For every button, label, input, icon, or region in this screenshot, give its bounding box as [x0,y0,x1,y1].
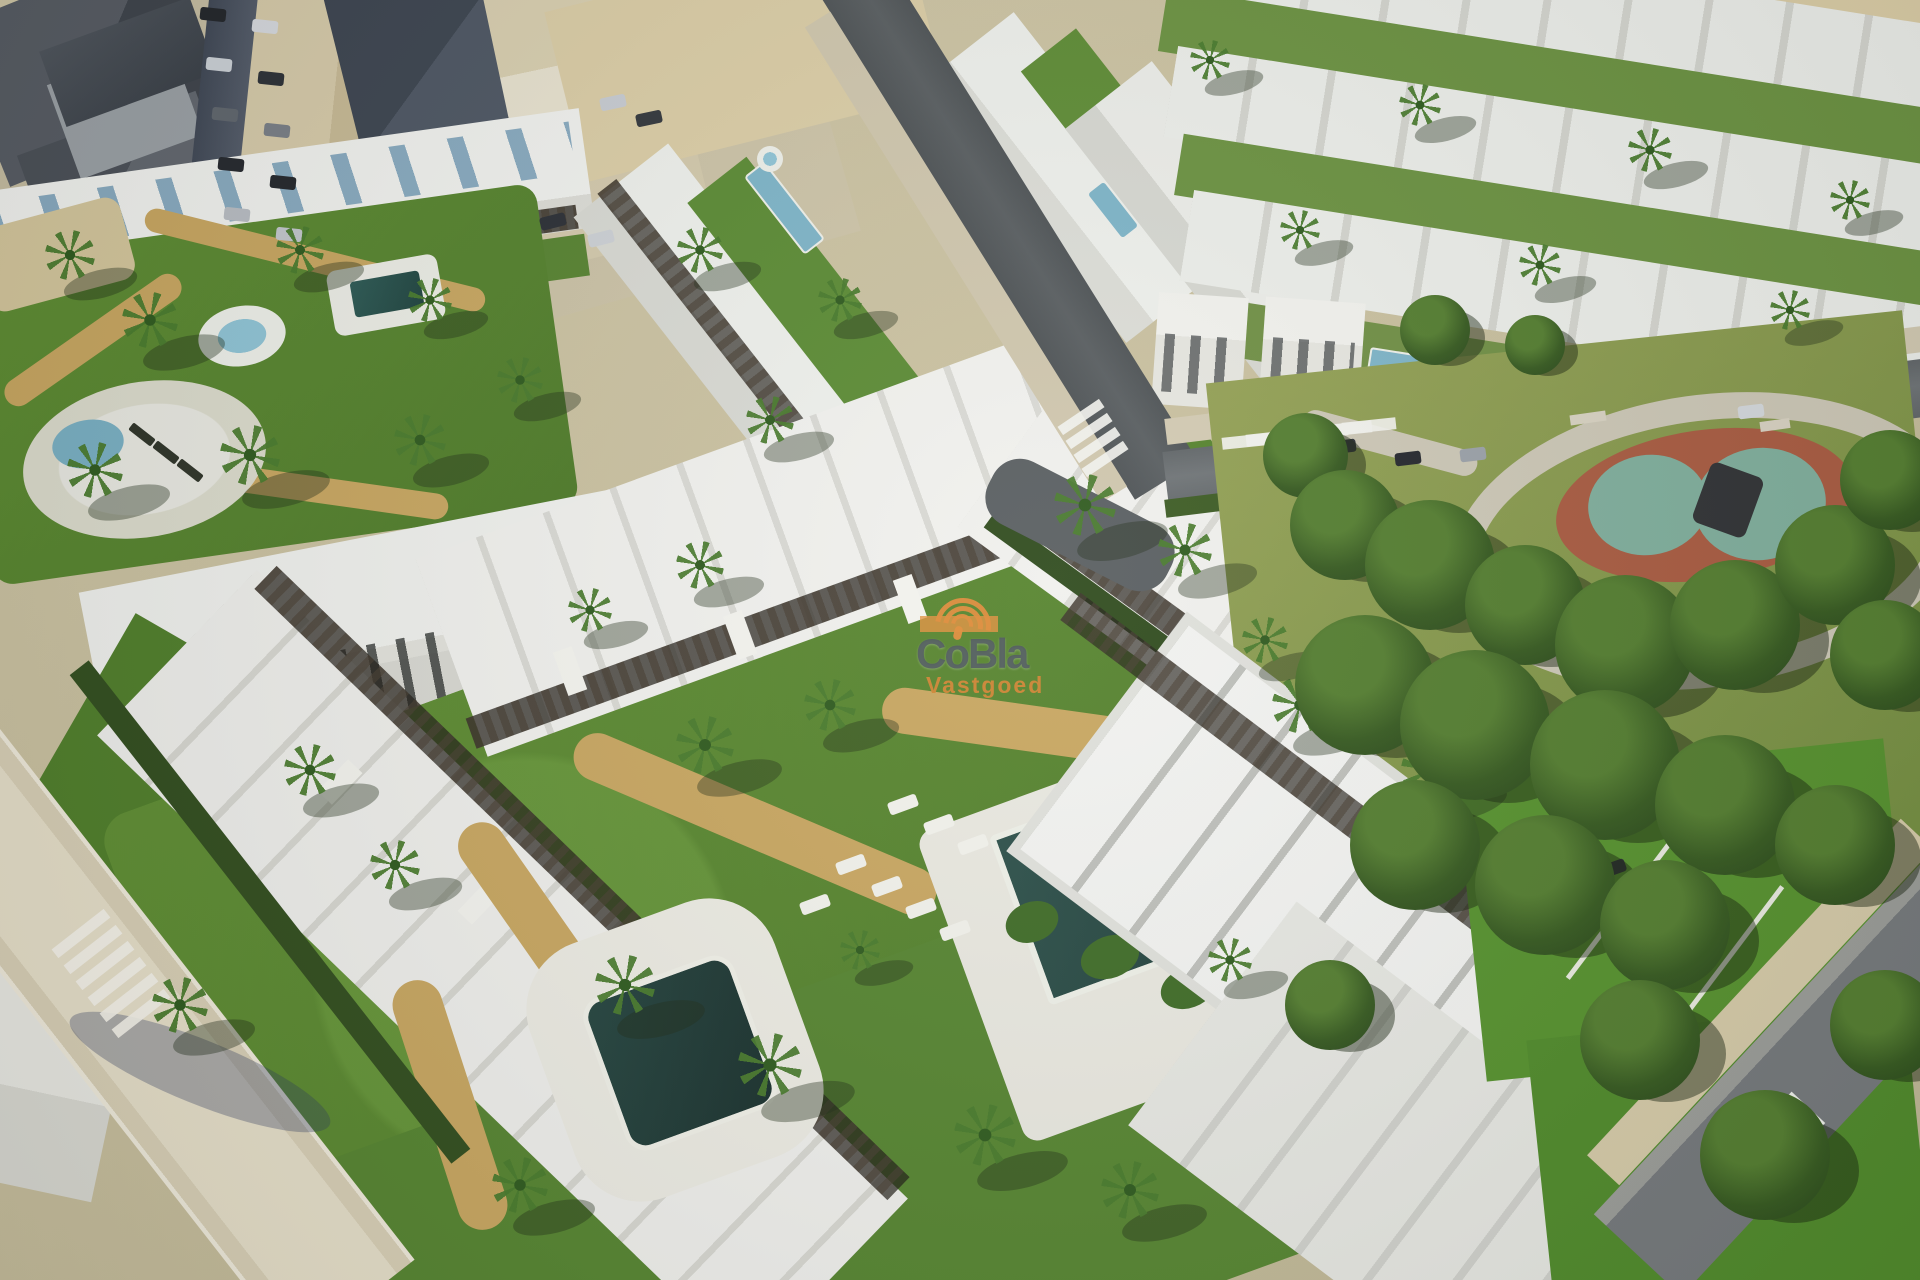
watermark-subtitle-text: Vastgoed [926,672,1044,699]
watermark-brand-text: CoBla [916,630,1027,678]
developer-watermark: CoBla Vastgoed [900,592,1110,712]
aerial-render-residential-development: CoBla Vastgoed [0,0,1920,1280]
